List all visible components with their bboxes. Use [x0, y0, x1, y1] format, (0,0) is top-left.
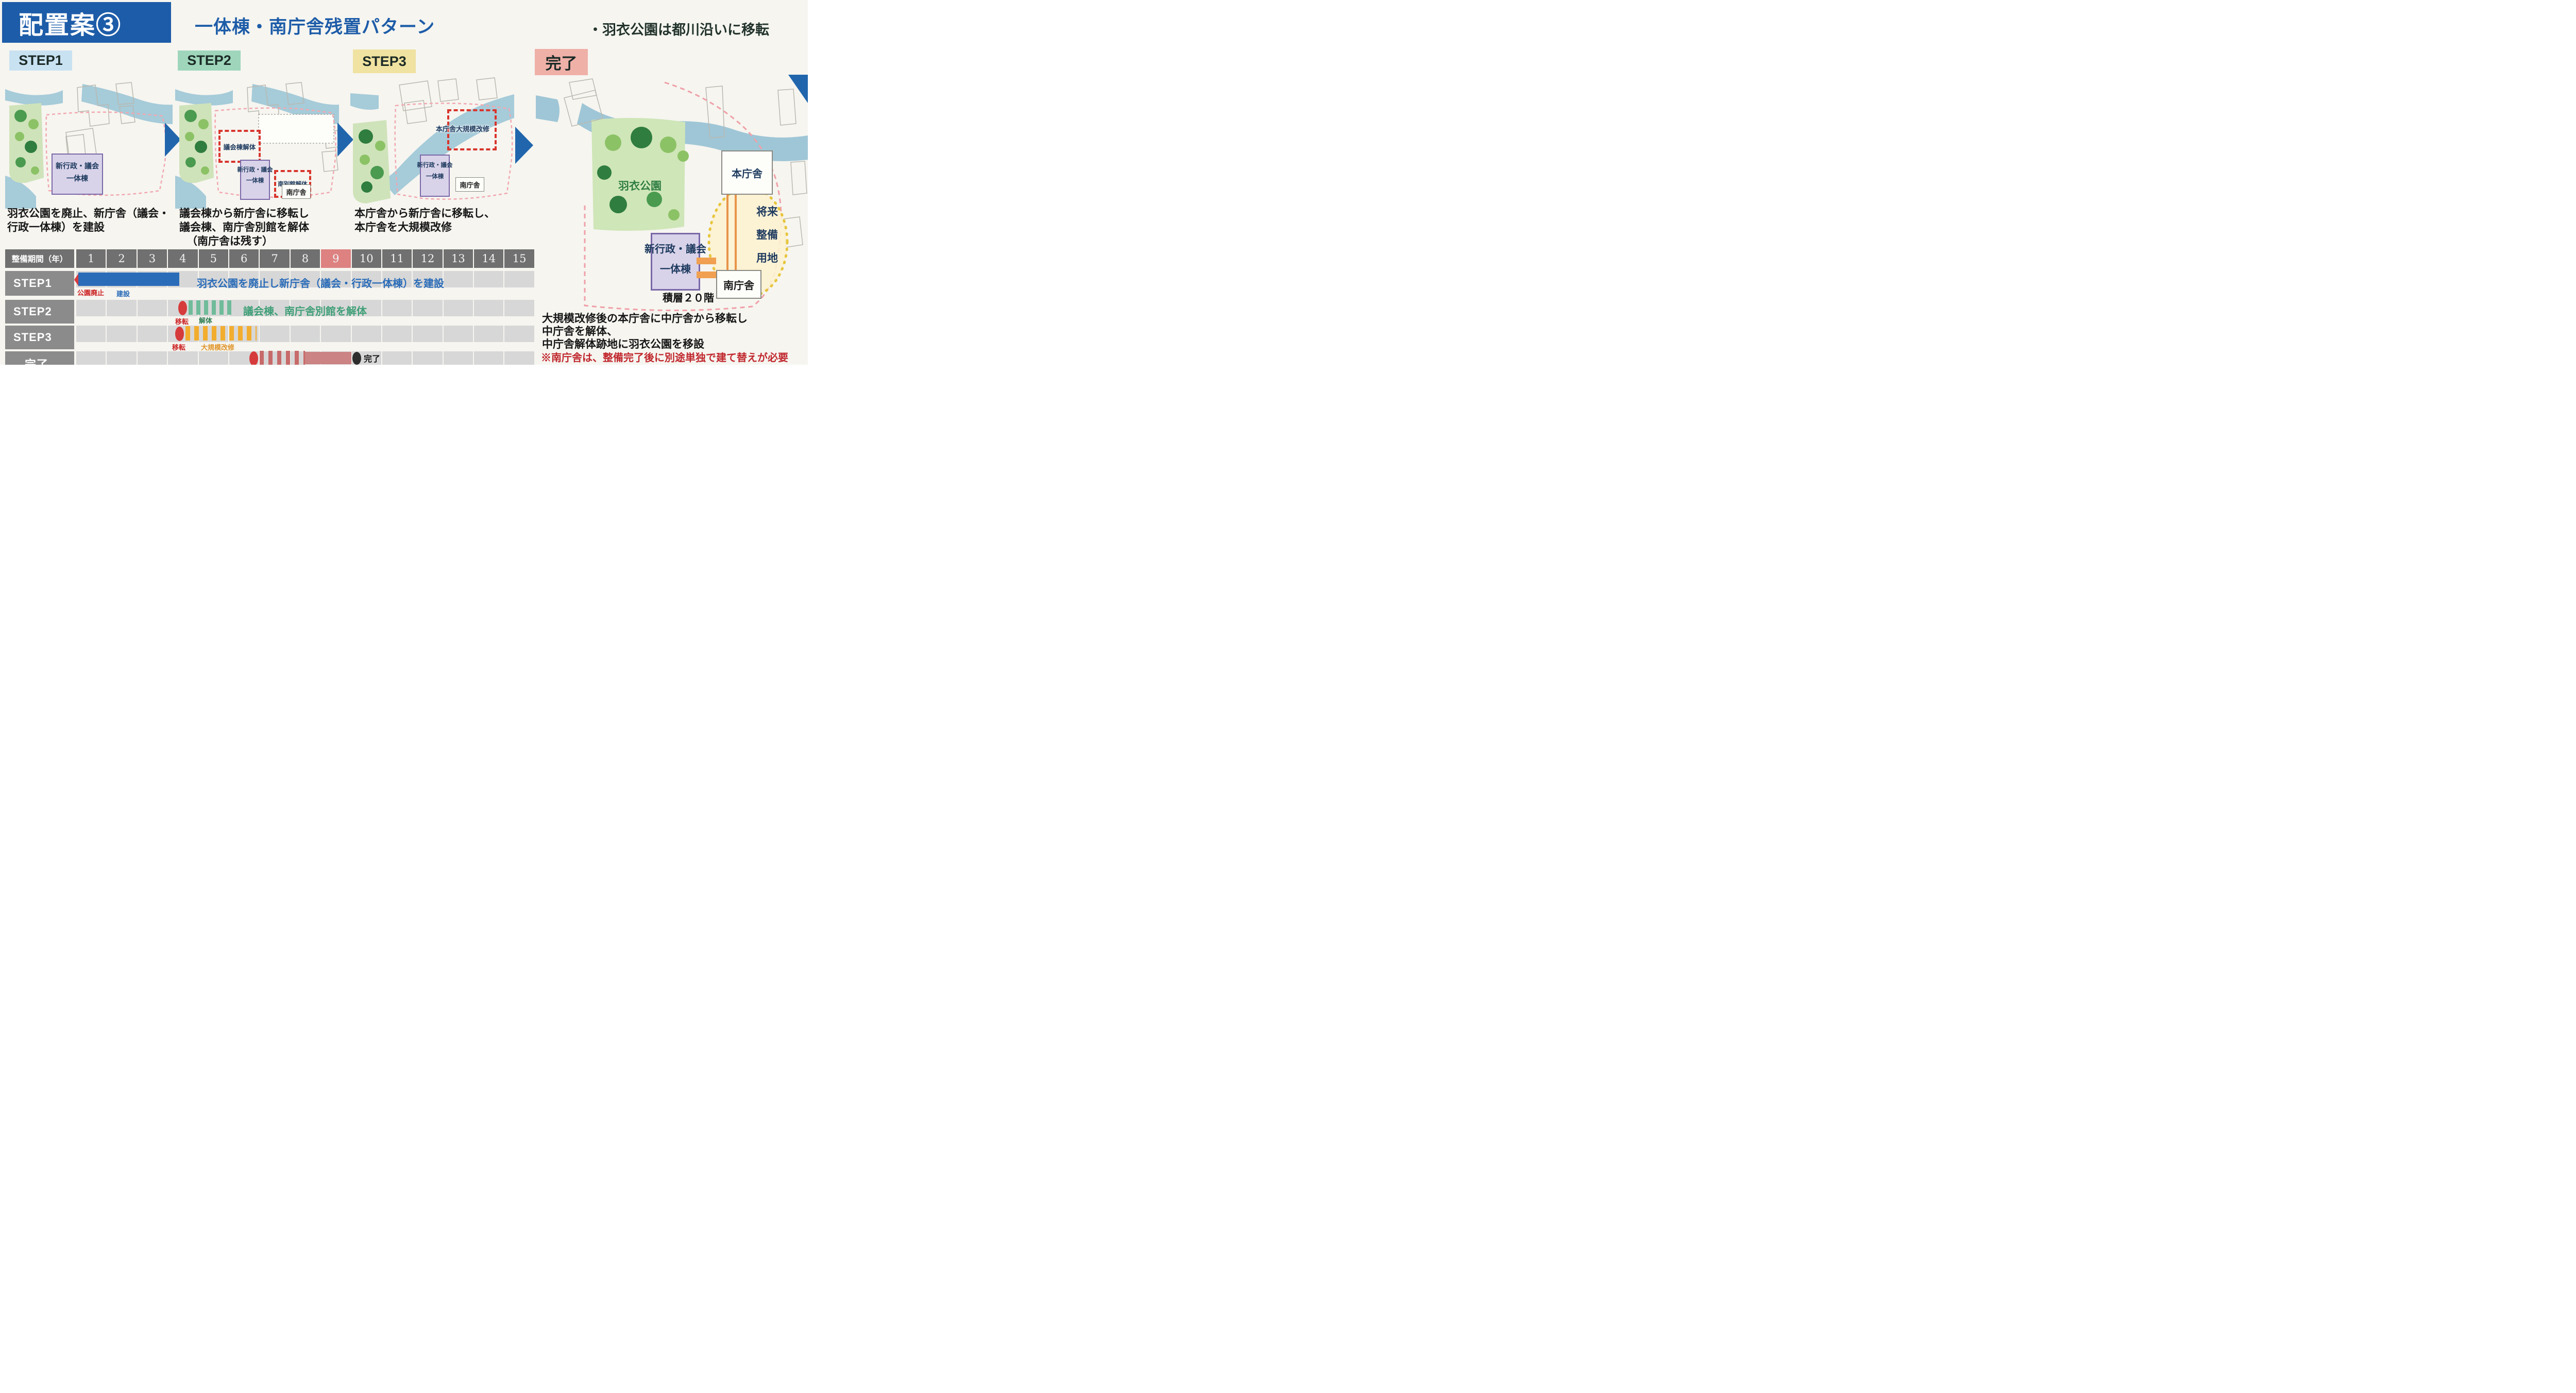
milestone-dot-icon: [178, 301, 187, 315]
gantt-cell: [382, 326, 412, 342]
gantt-cell: [138, 300, 167, 316]
gantt-cell: [76, 326, 106, 342]
year-cell: 3: [138, 249, 167, 268]
gantt-cell: [321, 326, 350, 342]
deck-connector: [697, 271, 716, 278]
step1-description: 羽衣公園を廃止、新庁舎（議会・行政一体棟）を建設: [7, 207, 170, 235]
step3-south-hall-box: 南庁舎: [455, 177, 484, 192]
final-end-label: 完了: [364, 352, 380, 364]
step3-milestone-label: 移転: [172, 342, 185, 352]
deck-connector: [697, 258, 716, 264]
gantt-cell: [260, 326, 289, 342]
year-cell: 1: [76, 249, 106, 268]
gantt-cell: [107, 351, 136, 365]
gantt-cell: [107, 300, 136, 316]
year-cell: 15: [504, 249, 534, 268]
step3-bar-label: 大規模改修: [201, 342, 234, 352]
gantt-cell: [382, 300, 412, 316]
gantt-row-label-step3: STEP3: [5, 326, 74, 349]
step2-gantt-description: 議会棟、南庁舎別館を解体: [243, 303, 367, 318]
year-cell: 7: [260, 249, 289, 268]
final-south-hall-box: 南庁舎: [716, 270, 761, 299]
gantt-cell: [413, 326, 442, 342]
top-right-note: ・羽衣公園は都川沿いに移転: [588, 19, 769, 39]
step3-tag: STEP3: [353, 49, 416, 73]
year-cell: 2: [107, 249, 136, 268]
final-park-label: 羽衣公園: [618, 178, 662, 193]
step1-tag: STEP1: [9, 50, 72, 71]
year-cell: 5: [199, 249, 228, 268]
step1-new-building-box: 新行政・議会 一体棟: [52, 154, 103, 195]
step1-gantt-description: 羽衣公園を廃止し新庁舎（議会・行政一体棟）を建設: [197, 275, 444, 290]
step3-renovation-label: 本庁舎大規模改修: [436, 124, 489, 133]
gantt-cell: [107, 326, 136, 342]
final-new-building-box: 新行政・議会 一体棟: [651, 233, 700, 291]
step3-new-building-box: 新行政・議会 一体棟: [420, 155, 450, 197]
gantt-cell: [504, 326, 534, 342]
milestone-dot-icon: [175, 327, 184, 341]
gantt-cell: [199, 351, 228, 365]
gantt-cell: [76, 351, 106, 365]
year-cell: 8: [291, 249, 320, 268]
year-cell: 13: [444, 249, 473, 268]
year-cell: 14: [474, 249, 503, 268]
page-title: 配置案③: [2, 5, 122, 41]
gantt-bar-step3: [185, 326, 257, 341]
gantt-row-label-step1: STEP1: [5, 271, 74, 296]
gantt-cell: [474, 326, 503, 342]
gantt-cell: [504, 271, 534, 287]
step3-description: 本庁舎から新庁舎に移転し、本庁舎を大規模改修: [354, 207, 495, 235]
gantt-chart: 整備期間（年） 1 2 3 4 5 6 7 8 9 10 11 12 13 14…: [5, 249, 539, 365]
final-note-warning: ※南庁舎は、整備完了後に別途単独で建て替えが必要: [541, 349, 788, 364]
gantt-row-label-step2: STEP2: [5, 300, 74, 324]
gantt-cell: [413, 351, 442, 365]
gantt-bar-final-solid: [305, 352, 351, 364]
final-south-hall-label: 南庁舎: [723, 277, 754, 292]
step2-milestone-label: 移転: [175, 316, 189, 326]
step2-tag: STEP2: [178, 50, 241, 71]
gantt-row-label-final: 完了: [5, 351, 74, 365]
gantt-cell: [352, 326, 381, 342]
future-site-label-1: 将来: [756, 203, 778, 219]
step3-building-label-1: 新行政・議会: [414, 162, 456, 169]
final-tag: 完了: [535, 49, 588, 75]
step1-building-label-1: 新行政・議会: [53, 162, 102, 170]
gantt-cell: [444, 271, 473, 287]
gantt-cell: [474, 351, 503, 365]
step2-south-hall-label: 南庁舎: [286, 187, 306, 197]
milestone-dot-icon: [249, 351, 258, 365]
gantt-cell: [168, 351, 197, 365]
gantt-cell: [444, 326, 473, 342]
final-main-hall-box: 本庁舎: [721, 150, 773, 195]
year-cell: 11: [382, 249, 412, 268]
gantt-cell: [76, 300, 106, 316]
gantt-cell: [382, 351, 412, 365]
final-main-hall-label: 本庁舎: [732, 165, 762, 180]
title-banner: 配置案③: [2, 2, 171, 43]
gantt-bar-final-striped: [260, 351, 305, 365]
step2-demolish-assembly-box: 議会棟解体: [218, 130, 261, 163]
gantt-cell: [138, 351, 167, 365]
future-main-hall-outline: [259, 114, 334, 143]
gantt-bar-step1: [78, 273, 179, 286]
gantt-cell: [413, 300, 442, 316]
future-site-label-3: 用地: [756, 250, 778, 265]
year-cell: 6: [229, 249, 259, 268]
gantt-year-header: 1 2 3 4 5 6 7 8 9 10 11 12 13 14 15: [76, 249, 535, 268]
gantt-cell: [504, 300, 534, 316]
step2-building-label-1: 新行政・議会: [234, 167, 276, 174]
gantt-cell: [291, 326, 320, 342]
year-cell: 4: [168, 249, 197, 268]
step3-building-label-2: 一体棟: [414, 174, 456, 180]
step3-south-hall-label: 南庁舎: [460, 180, 480, 190]
final-building-label-1: 新行政・議会: [641, 244, 710, 256]
step1-bar-label: 建設: [116, 288, 130, 298]
future-site-label-2: 整備: [756, 227, 778, 242]
gantt-cell: [474, 300, 503, 316]
gantt-cell: [138, 326, 167, 342]
gantt-cell: [474, 271, 503, 287]
completion-dot-icon: [352, 352, 361, 365]
step1-building-label-2: 一体棟: [53, 174, 102, 182]
gantt-cell: [504, 351, 534, 365]
gantt-row-cells: [76, 326, 535, 342]
year-cell-highlighted: 9: [321, 249, 350, 268]
step2-new-building-box: 新行政・議会 一体棟: [240, 160, 270, 200]
arrow-right-icon: [515, 127, 533, 164]
page-subtitle: 一体棟・南庁舎残置パターン: [195, 12, 435, 39]
year-cell: 12: [413, 249, 442, 268]
step2-description: 議会棟から新庁舎に移転し議会棟、南庁舎別館を解体（南庁舎は残す）: [179, 207, 309, 249]
step2-bar-label: 解体: [199, 315, 212, 325]
step2-demolish-assembly-label: 議会棟解体: [224, 142, 256, 151]
step2-south-hall-box: 南庁舎: [282, 184, 311, 199]
step1-milestone-label: 公園廃止: [77, 287, 104, 297]
final-floors-label: 積層２０階: [663, 290, 714, 304]
gantt-cell: [444, 300, 473, 316]
page: 配置案③ 一体棟・南庁舎残置パターン ・羽衣公園は都川沿いに移転 STEP1 S…: [0, 0, 808, 365]
gantt-header-label: 整備期間（年）: [5, 249, 74, 268]
year-cell: 10: [352, 249, 381, 268]
step2-building-label-2: 一体棟: [234, 178, 276, 184]
gantt-bar-step2: [189, 300, 235, 315]
gantt-cell: [444, 351, 473, 365]
